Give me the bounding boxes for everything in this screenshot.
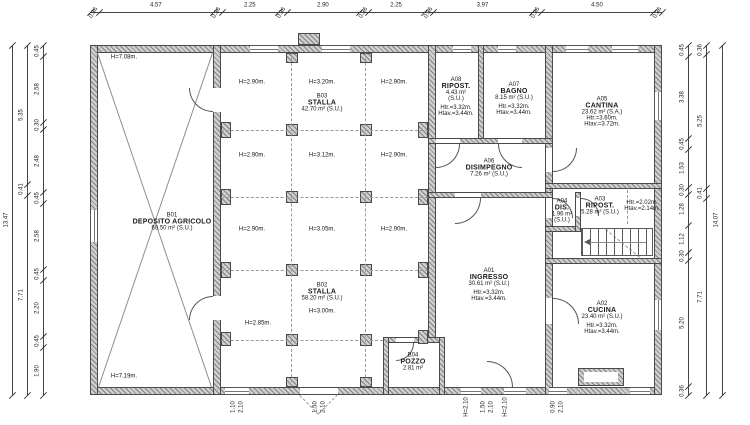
dimension-label: 7.71 [19, 289, 26, 301]
wall [383, 337, 389, 395]
dimension-label: 0.30 [680, 250, 687, 262]
opening-size-note: 1.10 [231, 401, 238, 413]
room-detail: Htav.=3.44m. [495, 110, 533, 116]
window-mullion [658, 300, 659, 330]
room-name: STALLA [301, 289, 342, 296]
dimension-label: 3.97 [477, 3, 489, 10]
room-name: DEPOSITO AGRICOLO [133, 219, 212, 226]
dimension-label: 2.25 [390, 3, 402, 10]
room-detail: Htav.=3.44m. [581, 329, 622, 335]
window-mullion [453, 49, 471, 50]
dimension-tick [719, 392, 726, 399]
room-detail: 58.20 m² (S.U.) [301, 296, 342, 302]
dimension-line [90, 12, 662, 13]
room-name: DIS. [552, 205, 572, 212]
dashed-line [291, 53, 292, 387]
dimension-tick [40, 392, 47, 399]
dimension-label: 13.47 [4, 212, 11, 227]
dimension-tick [24, 392, 31, 399]
room-name: RIPOST. [581, 203, 619, 210]
door-opening [546, 148, 552, 172]
room-name: Htav.=2.14m. [624, 206, 659, 212]
room-label-a03-note: Htr.=2.02m.Htav.=2.14m. [624, 200, 659, 212]
room-label-a03: A03RIPOST.5.28 m² (S.U.) [581, 197, 619, 216]
dimension-label: 1.90 [35, 365, 42, 377]
height-label: H=2.90m. [381, 227, 407, 234]
room-label-a06: A06DISIMPEGNO7.26 m² (S.U.) [466, 159, 513, 178]
door-swing-arc [189, 296, 213, 320]
window [90, 210, 98, 242]
door-swing-arc [553, 148, 577, 172]
dimension-label: 2.48 [35, 155, 42, 167]
room-detail: 60.50 m² (S.U.) [133, 226, 212, 232]
room-label-b04: B04POZZO2.81 m² [400, 353, 425, 372]
dimension-label: 2.58 [35, 230, 42, 242]
height-label: H=2.90m. [239, 80, 265, 87]
height-label: H=7.08m. [111, 55, 137, 62]
dashed-line [221, 270, 428, 271]
wall [478, 45, 484, 141]
window [630, 387, 650, 395]
door-opening [576, 198, 580, 216]
opening-size-note: 2.10 [489, 401, 496, 413]
dashed-line [221, 130, 428, 131]
height-label: H=3.00m. [309, 309, 335, 316]
window-mullion [225, 391, 249, 392]
dimension-label: 0.45 [680, 45, 687, 57]
opening-size-note: 1.50 [313, 401, 320, 413]
window-mullion [658, 92, 659, 120]
dimension-label: 14.07 [714, 212, 721, 227]
window [566, 45, 588, 53]
room-label-b03: B03STALLA42.70 m² (S.U.) [301, 94, 342, 113]
dashed-line [221, 340, 383, 341]
dashed-line [365, 53, 366, 387]
room-label-a01: A01INGRESSO30.61 m² (S.U.)Htr.=3.32m.Hta… [468, 268, 509, 302]
pilaster [418, 330, 428, 344]
window-mullion [504, 391, 526, 392]
height-label: H=2.85m. [245, 321, 271, 328]
window [225, 387, 249, 395]
dimension-label: 5.35 [19, 109, 26, 121]
room-detail: Htav.=3.44m. [438, 111, 473, 117]
window-mullion [94, 210, 95, 242]
window-mullion [566, 49, 588, 50]
stair-arrow [590, 242, 646, 243]
dimension-label: 2.90 [317, 3, 329, 10]
room-label-a05: A05CANTINA23.62 m² (S.A.)Htr.=3.60m.Htav… [582, 97, 623, 128]
room-detail: 42.70 m² (S.U.) [301, 107, 342, 113]
wall [545, 183, 662, 189]
dimension-label: 2.58 [35, 83, 42, 95]
dimension-line [27, 45, 28, 395]
dimension-line [722, 45, 723, 395]
window [250, 45, 278, 53]
dimension-label: 0.30 [35, 120, 42, 132]
wall [545, 258, 662, 264]
window [453, 45, 471, 53]
wall [90, 387, 662, 395]
dimension-line [688, 45, 689, 395]
door-opening [498, 139, 522, 143]
height-label: H=2.90m. [239, 153, 265, 160]
room-name: DISIMPEGNO [466, 165, 513, 172]
opening-size-note: 2.10 [239, 401, 246, 413]
door-swing-arc [436, 144, 460, 168]
height-label: H=2.90m. [381, 153, 407, 160]
dimension-label: 4.57 [150, 3, 162, 10]
wall [439, 337, 445, 395]
window [549, 387, 567, 395]
wall [428, 192, 553, 198]
wall [383, 337, 445, 343]
height-label: H=3.12m. [309, 153, 335, 160]
dimension-label: 2.20 [35, 302, 42, 314]
room-detail: Htav.=3.72m. [582, 122, 623, 128]
floor-plan: B01DEPOSITO AGRICOLO60.50 m² (S.U.)B03ST… [0, 0, 750, 425]
dimension-label: 0.45 [35, 45, 42, 57]
dimension-label: 7.71 [698, 291, 705, 303]
window-mullion [498, 49, 516, 50]
room-name: RIPOST. [438, 83, 473, 90]
room-detail: 2.81 m² [400, 366, 425, 372]
dimension-label: 0.36 [358, 6, 370, 19]
dimension-label: 5.25 [698, 115, 705, 127]
room-label-b02: B02STALLA58.20 m² (S.U.) [301, 283, 342, 302]
opening-size-note: 0.90 [551, 401, 558, 413]
dimension-tick [703, 392, 710, 399]
opening-size-note: H=2.10 [464, 397, 471, 417]
dimension-label: 2.25 [244, 3, 256, 10]
room-detail: 30.61 m² (S.U.) [468, 281, 509, 287]
room-detail: (S.U.) [552, 218, 572, 224]
height-label: H=7.19m. [111, 374, 137, 381]
opening-size-note: 2.10 [321, 401, 328, 413]
room-label-a02: A02CUCINA23.40 m² (S.U.)Htr.=3.32m.Htav.… [581, 301, 622, 335]
height-label: H=2.90m. [239, 227, 265, 234]
dimension-label: 3.38 [680, 91, 687, 103]
window-mullion [322, 49, 350, 50]
room-detail: 23.40 m² (S.U.) [581, 314, 622, 320]
room-detail: 8.15 m² (S.U.) [495, 95, 533, 101]
height-label: H=2.90m. [381, 80, 407, 87]
door-opening [300, 388, 338, 394]
dimension-label: 0.36 [423, 6, 435, 19]
dimension-label: 0.45 [35, 335, 42, 347]
dimension-label: 0.45 [35, 268, 42, 280]
door-opening [455, 193, 481, 197]
dashed-line [221, 197, 428, 198]
door-swing-arc [455, 198, 481, 224]
door-opening [213, 88, 221, 112]
window [654, 92, 662, 120]
opening-size-note: H=2.10 [503, 397, 510, 417]
room-detail: 7.26 m² (S.U.) [466, 172, 513, 178]
room-detail: Htav.=3.44m. [468, 296, 509, 302]
room-name: CANTINA [582, 103, 623, 110]
room-name: POZZO [400, 359, 425, 366]
room-label-a08: A08RIPOST.4.43 m²(S.U.)Htr.=3.32m.Htav.=… [438, 77, 473, 117]
dimension-label: 0.45 [680, 138, 687, 150]
dimension-label: 0.41 [19, 183, 26, 195]
dimension-label: 4.50 [591, 3, 603, 10]
room-detail: 5.28 m² (S.U.) [581, 210, 619, 216]
pilaster [221, 332, 231, 346]
opening-size-note: 2.10 [559, 401, 566, 413]
dimension-line [43, 45, 44, 395]
door-swing-arc [553, 298, 579, 324]
room-label-a04: A04DIS.1.96 m²(S.U.) [552, 199, 572, 224]
room-name: STALLA [301, 100, 342, 107]
height-label: H=3.05m. [309, 227, 335, 234]
window-mullion [630, 391, 650, 392]
dimension-label: 0.36 [698, 44, 705, 56]
door-opening [213, 296, 221, 320]
dimension-label: 0.36 [680, 385, 687, 397]
window [461, 387, 481, 395]
door-opening [396, 338, 414, 342]
dimension-line [706, 45, 707, 395]
dimension-label: 0.41 [698, 187, 705, 199]
room-name: INGRESSO [468, 274, 509, 281]
window-mullion [549, 391, 567, 392]
window [654, 300, 662, 330]
dimension-label: 5.20 [680, 317, 687, 329]
door-opening [436, 139, 460, 143]
room-label-a07: A07BAGNO8.15 m² (S.U.)Htr.=3.32m.Htav.=3… [495, 82, 533, 116]
door-swing-arc [487, 361, 513, 387]
opening-size-note: 1.50 [481, 401, 488, 413]
dimension-label: 1.28 [680, 204, 687, 216]
window [612, 45, 638, 53]
window [498, 45, 516, 53]
dimension-line [12, 45, 13, 395]
dimension-tick [9, 392, 16, 399]
window [322, 45, 350, 53]
dimension-label: 0.30 [680, 184, 687, 196]
room-name: BAGNO [495, 88, 533, 95]
fireplace-hearth [584, 372, 618, 382]
room-name: CUCINA [581, 307, 622, 314]
window-mullion [612, 49, 638, 50]
chimney [298, 33, 320, 45]
window [504, 387, 526, 395]
dimension-label: 1.12 [680, 233, 687, 245]
dimension-label: 1.53 [680, 162, 687, 174]
stair-arrow-head [584, 239, 590, 245]
room-label-b01: B01DEPOSITO AGRICOLO60.50 m² (S.U.) [133, 213, 212, 232]
window-mullion [250, 49, 278, 50]
door-opening [546, 298, 552, 324]
window-mullion [461, 391, 481, 392]
height-label: H=3.20m. [309, 80, 335, 87]
dimension-label: 0.45 [35, 192, 42, 204]
dimension-label: 0.36 [652, 6, 664, 19]
